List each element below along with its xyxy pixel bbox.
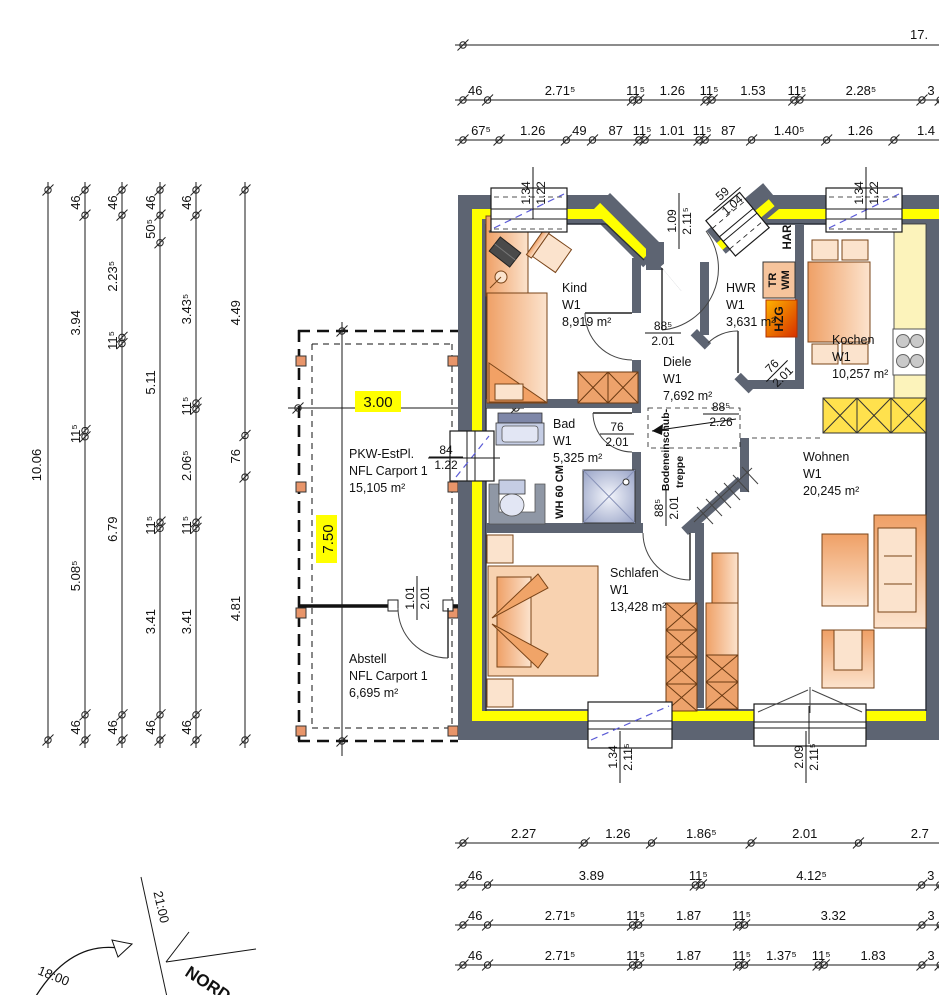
dim-label: 2.01 [792,826,817,841]
attic-label-1: Bodeneinschub- [660,408,672,491]
sun-time-1800: 18:00 [36,963,72,989]
dim-chain-bottom-3: 462.71⁵11⁵1.8711⁵3.323 [455,908,939,931]
dim-chain-top-3: 67⁵1.26498711⁵1.0111⁵871.40⁵1.261.4 [455,123,939,146]
dim-label: 1.4 [917,123,935,138]
svg-text:Wohnen: Wohnen [803,450,849,464]
dim-label: 11⁵ [633,123,652,138]
dim-label: 46 [143,195,158,209]
dim-label: 3 [927,908,934,923]
dim-label: 1.87 [676,948,701,963]
sun-time-2100: 21:00 [150,889,172,924]
svg-text:W1: W1 [726,298,745,312]
dim-label: 4.12⁵ [796,868,827,883]
svg-text:W1: W1 [803,467,822,481]
svg-text:76: 76 [610,420,624,434]
dim-chain-bottom-1: 2.271.261.86⁵2.012.7 [455,826,939,849]
dim-label: 1.40⁵ [774,123,805,138]
dim-label: 49 [572,123,586,138]
svg-text:15,105 m²: 15,105 m² [349,481,405,495]
svg-text:88⁵: 88⁵ [712,400,730,414]
dim-label: 1.87 [676,908,701,923]
room-label-diele: DieleW17,692 m² [663,355,712,403]
dim-top-total: 17. [455,27,939,51]
dim-attic-hatch: 88⁵2.26 [703,400,739,429]
dim-label: 46 [179,720,194,734]
dim-label: 67⁵ [471,123,491,138]
svg-text:2.11⁵: 2.11⁵ [621,743,635,770]
dim-label: 2.71⁵ [545,908,576,923]
dim-chain-left-5: 463.43⁵11⁵2.06⁵11⁵3.4146 [179,182,202,748]
svg-text:3.00: 3.00 [363,394,392,411]
toilet-tank [499,480,525,494]
shelf [712,553,738,603]
svg-text:Diele: Diele [663,355,692,369]
svg-text:84: 84 [439,443,453,457]
svg-text:2.09: 2.09 [792,745,806,769]
svg-text:2.11⁵: 2.11⁵ [680,207,694,234]
svg-text:10,257 m²: 10,257 m² [832,367,888,381]
hwr-door-opening [704,342,741,379]
svg-text:13,428 m²: 13,428 m² [610,600,666,614]
dim-chain-top-2: 462.71⁵11⁵1.2611⁵1.5311⁵2.28⁵3 [455,83,939,106]
carport-post [296,356,306,366]
dim-label: 3.41 [179,609,194,634]
knee-wall-label: WH 60 CM [554,465,566,519]
toilet-bowl [500,494,524,516]
dim-label: 46 [105,195,120,209]
floor-plan-canvas: 3.00 7.50 [0,0,939,995]
dim-label: 1.26 [660,83,685,98]
dim-chain-bottom-2: 463.8911⁵4.12⁵3 [455,868,939,891]
svg-text:2.01: 2.01 [667,496,681,520]
dim-label: 11⁵ [787,83,806,98]
svg-text:Kind: Kind [562,281,587,295]
dim-label: 11⁵ [179,397,194,416]
room-label-carport: PKW-EstPl.NFL Carport 115,105 m² [349,447,428,495]
dim-label: 11⁵ [626,908,645,923]
dim-label: 1.83 [860,948,885,963]
dim-label: 46 [68,195,83,209]
dim-label: 3 [927,868,934,883]
dim-label: 76 [228,449,243,463]
svg-text:W1: W1 [663,372,682,386]
dim-label: 46 [143,720,158,734]
dim-label: 4.81 [228,596,243,621]
svg-text:1.22: 1.22 [867,181,881,205]
dim-door-abstell: 1.012.01 [403,576,432,620]
svg-text:W1: W1 [610,583,629,597]
dim-label: 87 [608,123,622,138]
dim-label: 11⁵ [732,908,751,923]
svg-text:NFL Carport 1: NFL Carport 1 [349,464,428,478]
dim-label: 1.26 [605,826,630,841]
svg-text:HWR: HWR [726,281,756,295]
svg-text:2.01: 2.01 [418,586,432,610]
dim-chain-left-2: 463.9411⁵5.08⁵46 [68,182,91,748]
window-schlafen [588,702,672,748]
svg-text:7,692 m²: 7,692 m² [663,389,712,403]
svg-text:1.34: 1.34 [606,745,620,769]
dim-chain-bottom-4: 462.71⁵11⁵1.8711⁵1.37⁵11⁵1.833 [455,948,939,971]
svg-text:W1: W1 [553,434,572,448]
dim-label: 46 [68,720,83,734]
dim-label: 11⁵ [626,948,645,963]
dim-label: 6.79 [105,517,120,542]
svg-text:1.22: 1.22 [434,458,458,472]
room-label-kind: KindW18,919 m² [562,281,611,329]
svg-text:20,245 m²: 20,245 m² [803,484,859,498]
svg-text:10.06: 10.06 [29,449,44,482]
svg-text:PKW-EstPl.: PKW-EstPl. [349,447,414,461]
svg-text:2.11⁵: 2.11⁵ [807,743,821,770]
dim-label: 3.41 [143,609,158,634]
dim-chain-left-4: 4650⁵5.1111⁵3.4146 [143,182,166,748]
svg-text:17.: 17. [910,27,928,42]
coffee-table [822,534,868,606]
dim-label: 3 [927,83,934,98]
dim-label: 11⁵ [689,868,708,883]
svg-text:3,631 m²: 3,631 m² [726,315,775,329]
dim-door-schlafen: 88⁵2.01 [652,490,681,526]
svg-text:1.22: 1.22 [534,181,548,205]
dim-label: 46 [179,195,194,209]
dim-label: 11⁵ [700,83,719,98]
har-label: HAR [782,224,794,250]
dim-label: 11⁵ [693,123,712,138]
arrow-head-icon [112,940,132,957]
floor-plan-page: 3.00 7.50 [0,0,939,995]
svg-text:1.01: 1.01 [403,586,417,610]
dim-label: 1.01 [659,123,684,138]
svg-text:8,919 m²: 8,919 m² [562,315,611,329]
dining-table [808,262,870,342]
svg-text:2.26: 2.26 [709,415,733,429]
dryer-label: TR [767,273,779,288]
dim-chain-left-3: 462.23⁵11⁵6.7946 [105,182,128,748]
chair [812,240,838,260]
dim-label: 11⁵ [732,948,751,963]
dim-door-bad: 762.01 [600,420,634,449]
dim-label: 2.28⁵ [846,83,877,98]
dim-label: 3.89 [579,868,604,883]
room-label-wohnen: WohnenW120,245 m² [803,450,859,498]
room-label-abstell: AbstellNFL Carport 16,695 m² [349,652,428,700]
nightstand [487,535,513,563]
svg-text:1.34: 1.34 [519,181,533,205]
dim-label: 5.08⁵ [68,560,83,591]
svg-text:Schlafen: Schlafen [610,566,659,580]
svg-text:W1: W1 [832,350,851,364]
terrace-door [754,687,866,746]
svg-text:Kochen: Kochen [832,333,874,347]
dim-label: 2.06⁵ [179,450,194,481]
dim-label: 46 [468,83,482,98]
dim-label: 5.11 [143,370,158,394]
dim-label: 2.7 [911,826,929,841]
svg-text:NFL Carport 1: NFL Carport 1 [349,669,428,683]
svg-text:88⁵: 88⁵ [654,319,672,333]
dim-label: 2.23⁵ [105,261,120,292]
dim-label: 3.43⁵ [179,294,194,325]
svg-text:2.01: 2.01 [605,435,629,449]
washer-label: WM [780,270,792,290]
abstell-door-arc [398,608,448,658]
dim-label: 87 [721,123,735,138]
dim-label: 1.53 [740,83,765,98]
dim-label: 1.37⁵ [766,948,797,963]
desk-chair [526,228,572,274]
svg-text:1.34: 1.34 [852,181,866,205]
dim-label: 11⁵ [68,424,83,443]
dim-label: 46 [468,948,482,963]
dim-label: 4.49 [228,300,243,325]
dim-label: 11⁵ [812,948,831,963]
dim-label: 46 [468,868,482,883]
svg-text:5,325 m²: 5,325 m² [553,451,602,465]
dim-label: 3.94 [68,310,83,335]
north-compass: 21:00 18:00 NORD [36,877,256,995]
svg-text:7.50: 7.50 [320,524,337,553]
sink [498,413,542,423]
dim-label: 3.32 [821,908,846,923]
dim-label: 3 [927,948,934,963]
dim-label: 50⁵ [143,219,158,239]
dim-label: 1.26 [848,123,873,138]
svg-text:6,695 m²: 6,695 m² [349,686,398,700]
room-label-schlafen: SchlafenW113,428 m² [610,566,666,614]
dim-label: 11⁵ [626,83,645,98]
dim-label: 1.86⁵ [686,826,717,841]
dim-door-kind: 88⁵2.01 [645,319,681,348]
svg-text:88⁵: 88⁵ [652,499,666,517]
shower-drain [623,479,629,485]
dim-label: 11⁵ [105,331,120,350]
svg-text:1.09: 1.09 [665,209,679,233]
attic-label-2: treppe [674,456,686,488]
dim-chain-left-6: 4.49764.81 [228,182,251,748]
svg-text:Abstell: Abstell [349,652,387,666]
svg-text:2.01: 2.01 [651,334,675,348]
svg-text:Bad: Bad [553,417,575,431]
carport-depth-dim: 7.50 [316,515,337,563]
dim-label: 46 [468,908,482,923]
dim-label: 2.27 [511,826,536,841]
dim-left-total: 10.06 [29,182,54,748]
svg-text:W1: W1 [562,298,581,312]
dim-label: 46 [105,720,120,734]
dim-label: 2.71⁵ [545,83,576,98]
dim-entry-door: 1.092.11⁵ [665,193,694,249]
dim-label: 2.71⁵ [545,948,576,963]
dim-label: 11⁵ [179,516,194,535]
dim-label: 1.26 [520,123,545,138]
dim-label: 11⁵ [143,516,158,535]
north-label: NORD [182,962,234,995]
carport-width-dim: 3.00 [355,391,401,412]
